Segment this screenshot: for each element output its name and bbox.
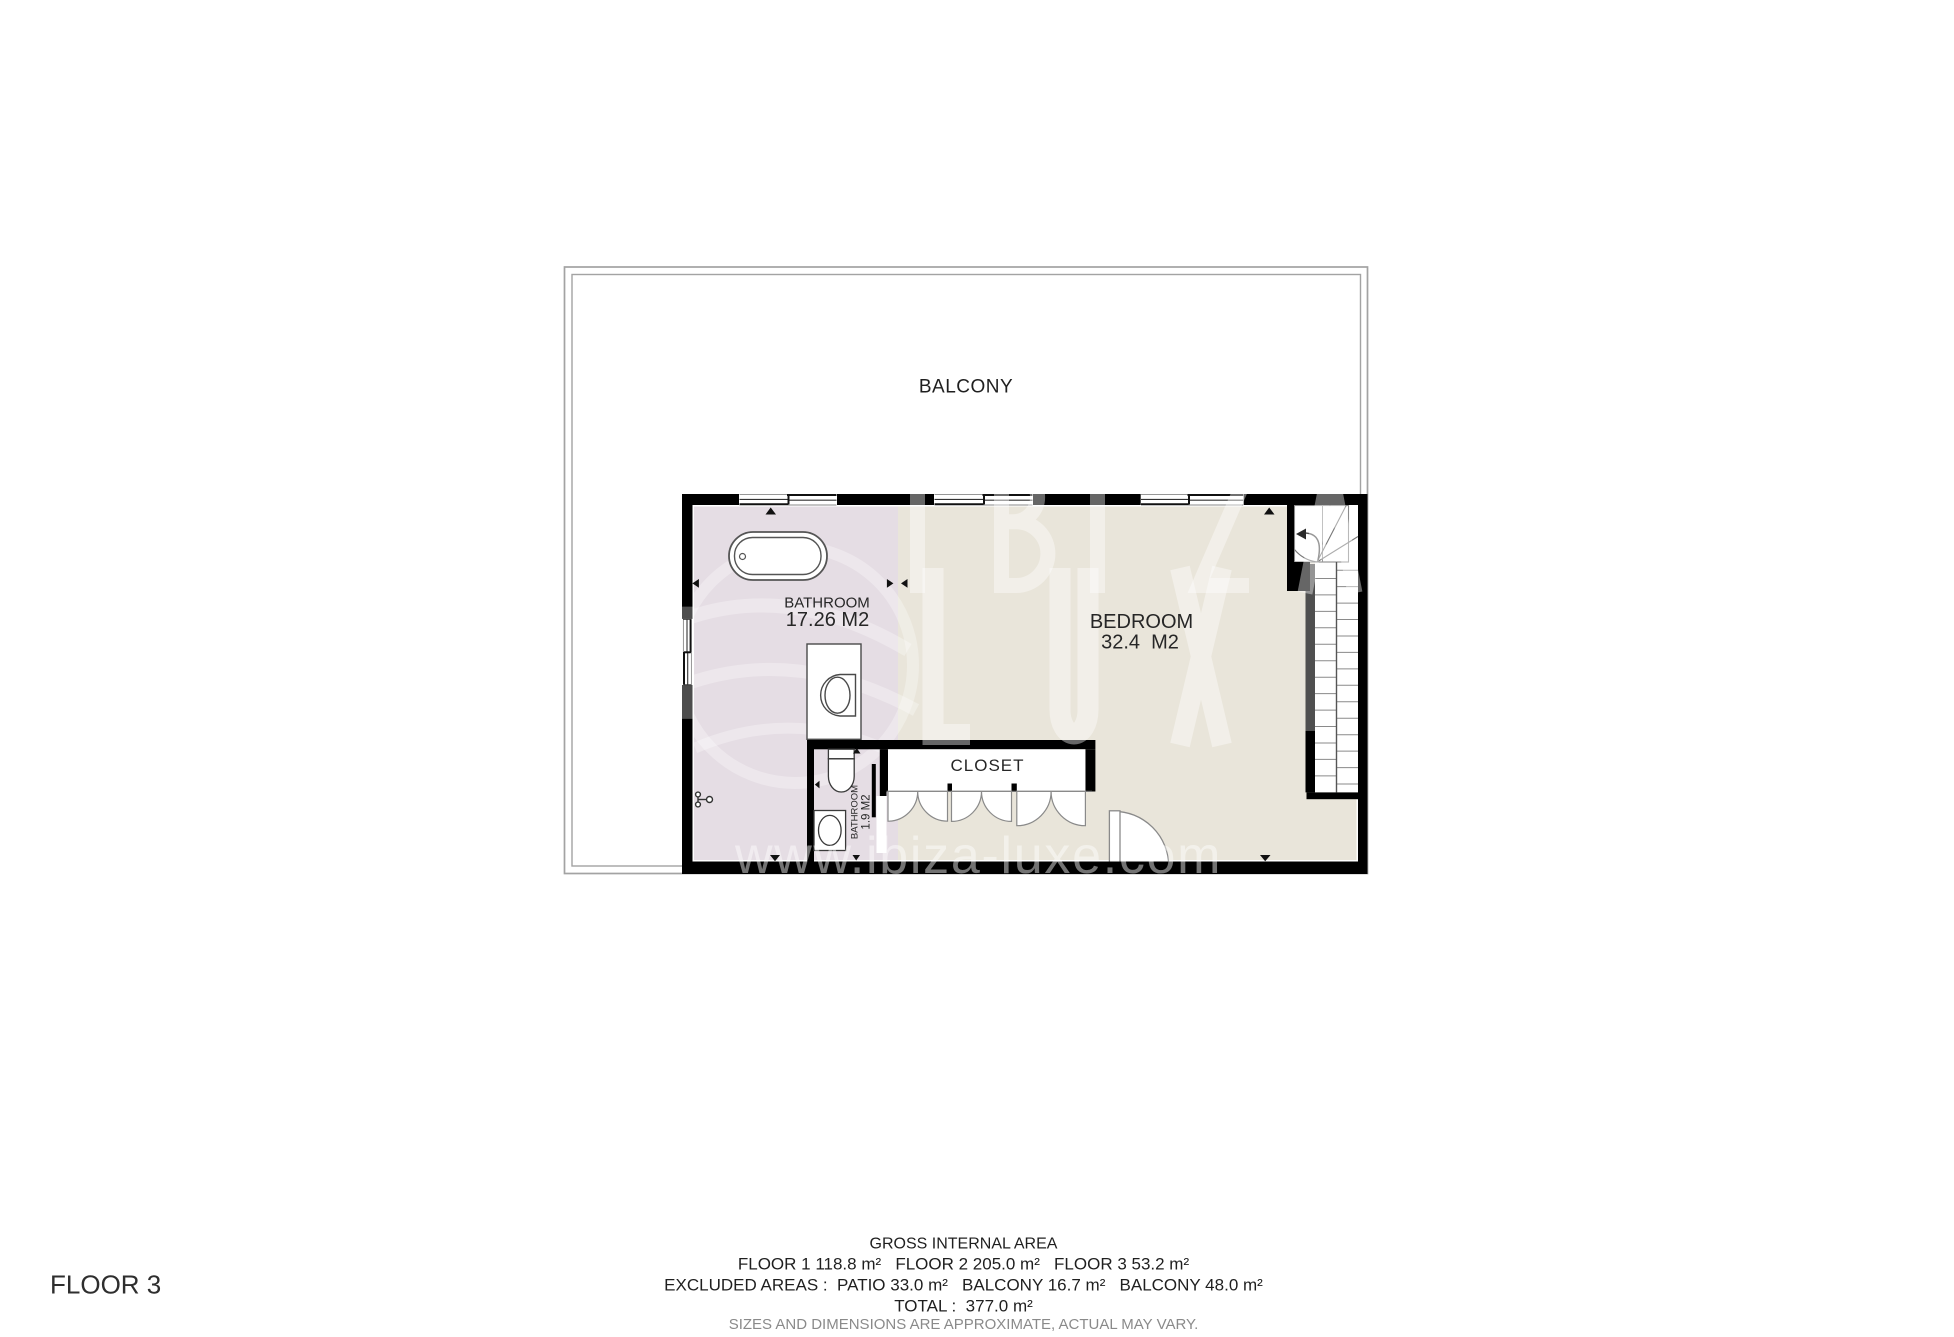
svg-text:BEDROOM: BEDROOM [1090,611,1193,633]
svg-text:BALCONY: BALCONY [919,377,1013,398]
svg-text:1.9 M2: 1.9 M2 [861,794,873,829]
svg-text:17.26 M2: 17.26 M2 [786,609,869,631]
svg-text:CLOSET: CLOSET [950,756,1024,775]
svg-text:FLOOR 3: FLOOR 3 [50,1270,161,1300]
svg-text:www.ibiza-luxe.com: www.ibiza-luxe.com [734,827,1222,885]
svg-text:GROSS INTERNAL AREA: GROSS INTERNAL AREA [870,1236,1058,1253]
svg-text:SIZES AND DIMENSIONS ARE APPRO: SIZES AND DIMENSIONS ARE APPROXIMATE, AC… [729,1316,1199,1332]
svg-text:EXCLUDED AREAS : PATIO 33.0 m: EXCLUDED AREAS : PATIO 33.0 m² BALCONY 1… [664,1276,1263,1295]
svg-text:TOTAL : 377.0 m²: TOTAL : 377.0 m² [894,1297,1033,1316]
svg-text:32.4 M2: 32.4 M2 [1101,632,1179,654]
svg-text:FLOOR 1 118.8 m² FLOOR 2 205: FLOOR 1 118.8 m² FLOOR 2 205.0 m² FLOOR … [738,1255,1190,1274]
